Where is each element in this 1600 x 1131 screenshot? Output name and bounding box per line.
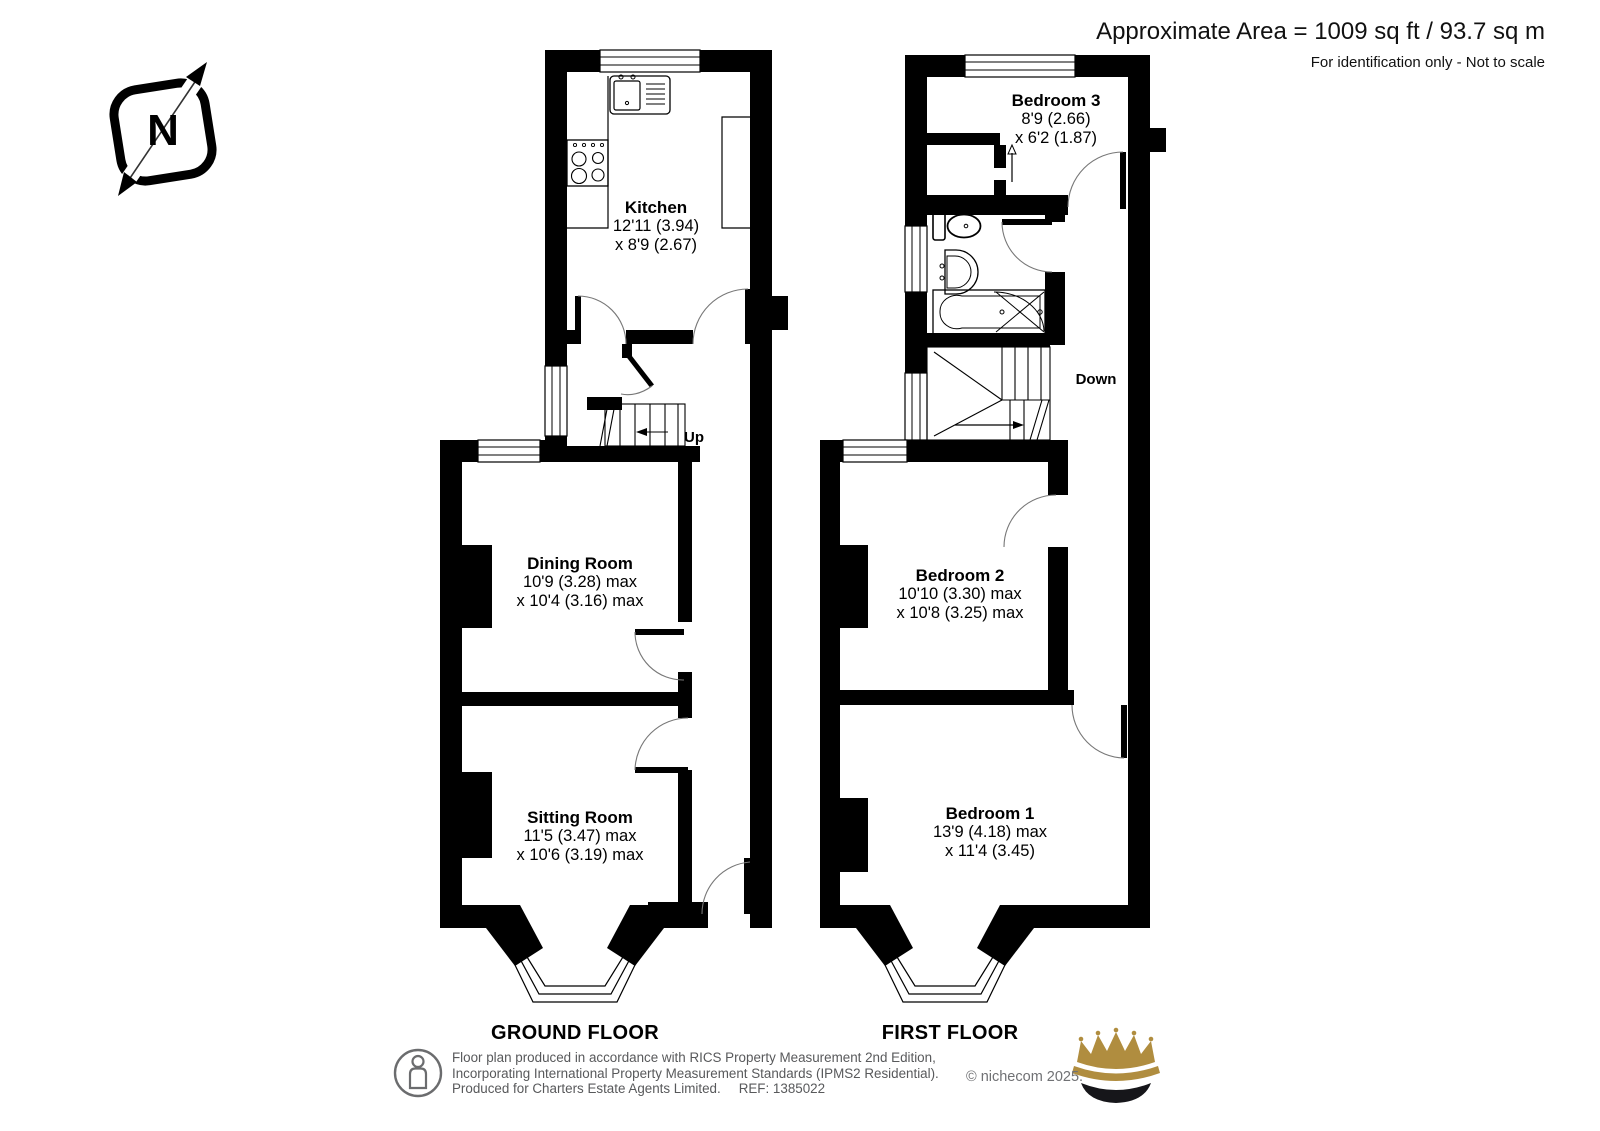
person-oval-icon xyxy=(395,1050,441,1096)
room-label-bedroom2: Bedroom 2 10'10 (3.30) max x 10'8 (3.25)… xyxy=(897,566,1024,623)
crown-logo xyxy=(1072,1028,1160,1103)
ground-floor-caption: GROUND FLOOR xyxy=(491,1022,659,1045)
footer-line3: Produced for Charters Estate Agents Limi… xyxy=(452,1081,939,1097)
room-dim2: x 6'2 (1.87) xyxy=(1012,129,1101,148)
bay-window-ground xyxy=(486,905,664,1002)
room-dim1: 13'9 (4.18) max xyxy=(933,823,1047,842)
basin xyxy=(940,250,978,294)
room-name: Dining Room xyxy=(517,554,644,573)
reference-number: REF: 1385022 xyxy=(739,1081,825,1096)
room-name: Bedroom 3 xyxy=(1012,91,1101,110)
room-dim1: 10'10 (3.30) max xyxy=(897,585,1024,604)
room-dim1: 12'11 (3.94) xyxy=(613,217,699,236)
bathtub xyxy=(933,290,1045,334)
floorplan-drawing xyxy=(0,0,1600,1131)
kitchen-sink xyxy=(610,75,670,114)
copyright-text: © nichecom 2025. xyxy=(966,1069,1083,1085)
footer-line2: Incorporating International Property Mea… xyxy=(452,1066,939,1082)
footer-disclaimer: Floor plan produced in accordance with R… xyxy=(452,1050,939,1097)
first-floor-caption: FIRST FLOOR xyxy=(882,1022,1019,1045)
hall-window xyxy=(545,366,567,436)
room-dim2: x 10'8 (3.25) max xyxy=(897,604,1024,623)
room-dim2: x 8'9 (2.67) xyxy=(613,236,699,255)
produced-for-text: Produced for Charters Estate Agents Limi… xyxy=(452,1081,721,1096)
dining-window xyxy=(478,440,540,462)
landing-window xyxy=(905,373,927,440)
identification-note-text: For identification only - Not to scale xyxy=(1311,54,1545,71)
stairs-down-label: Down xyxy=(1076,371,1117,388)
cooker xyxy=(567,140,608,186)
room-label-kitchen: Kitchen 12'11 (3.94) x 8'9 (2.67) xyxy=(613,198,699,255)
room-dim2: x 11'4 (3.45) xyxy=(933,842,1047,861)
staircase-down xyxy=(927,347,1050,440)
first-walls xyxy=(820,55,1166,928)
room-dim2: x 10'4 (3.16) max xyxy=(517,592,644,611)
approximate-area-text: Approximate Area = 1009 sq ft / 93.7 sq … xyxy=(1096,18,1545,46)
footer-line1: Floor plan produced in accordance with R… xyxy=(452,1050,939,1066)
room-name: Kitchen xyxy=(613,198,699,217)
floorplan-page: Approximate Area = 1009 sq ft / 93.7 sq … xyxy=(0,0,1600,1131)
room-name: Bedroom 2 xyxy=(897,566,1024,585)
stairs-up-label: Up xyxy=(684,429,704,446)
ground-walls xyxy=(440,50,788,928)
chimney-breasts-first xyxy=(840,545,868,872)
room-name: Bedroom 1 xyxy=(933,804,1047,823)
bedroom2-window xyxy=(843,440,907,462)
room-dim1: 10'9 (3.28) max xyxy=(517,573,644,592)
kitchen-window xyxy=(600,50,700,72)
room-label-sitting-room: Sitting Room 11'5 (3.47) max x 10'6 (3.1… xyxy=(517,808,644,865)
room-dim1: 8'9 (2.66) xyxy=(1012,110,1101,129)
room-label-bedroom3: Bedroom 3 8'9 (2.66) x 6'2 (1.87) xyxy=(1012,91,1101,148)
room-label-dining-room: Dining Room 10'9 (3.28) max x 10'4 (3.16… xyxy=(517,554,644,611)
room-label-bedroom1: Bedroom 1 13'9 (4.18) max x 11'4 (3.45) xyxy=(933,804,1047,861)
bathroom-fixtures xyxy=(933,212,1045,334)
room-name: Sitting Room xyxy=(517,808,644,827)
toilet xyxy=(933,212,981,240)
room-dim2: x 10'6 (3.19) max xyxy=(517,846,644,865)
closet-arrow xyxy=(1008,145,1016,182)
bay-window-first xyxy=(856,905,1034,1002)
room-dim1: 11'5 (3.47) max xyxy=(517,827,644,846)
bedroom3-window xyxy=(965,55,1075,77)
compass-north-letter: N xyxy=(147,106,179,156)
bathroom-window xyxy=(905,226,927,292)
staircase-up xyxy=(600,404,685,446)
